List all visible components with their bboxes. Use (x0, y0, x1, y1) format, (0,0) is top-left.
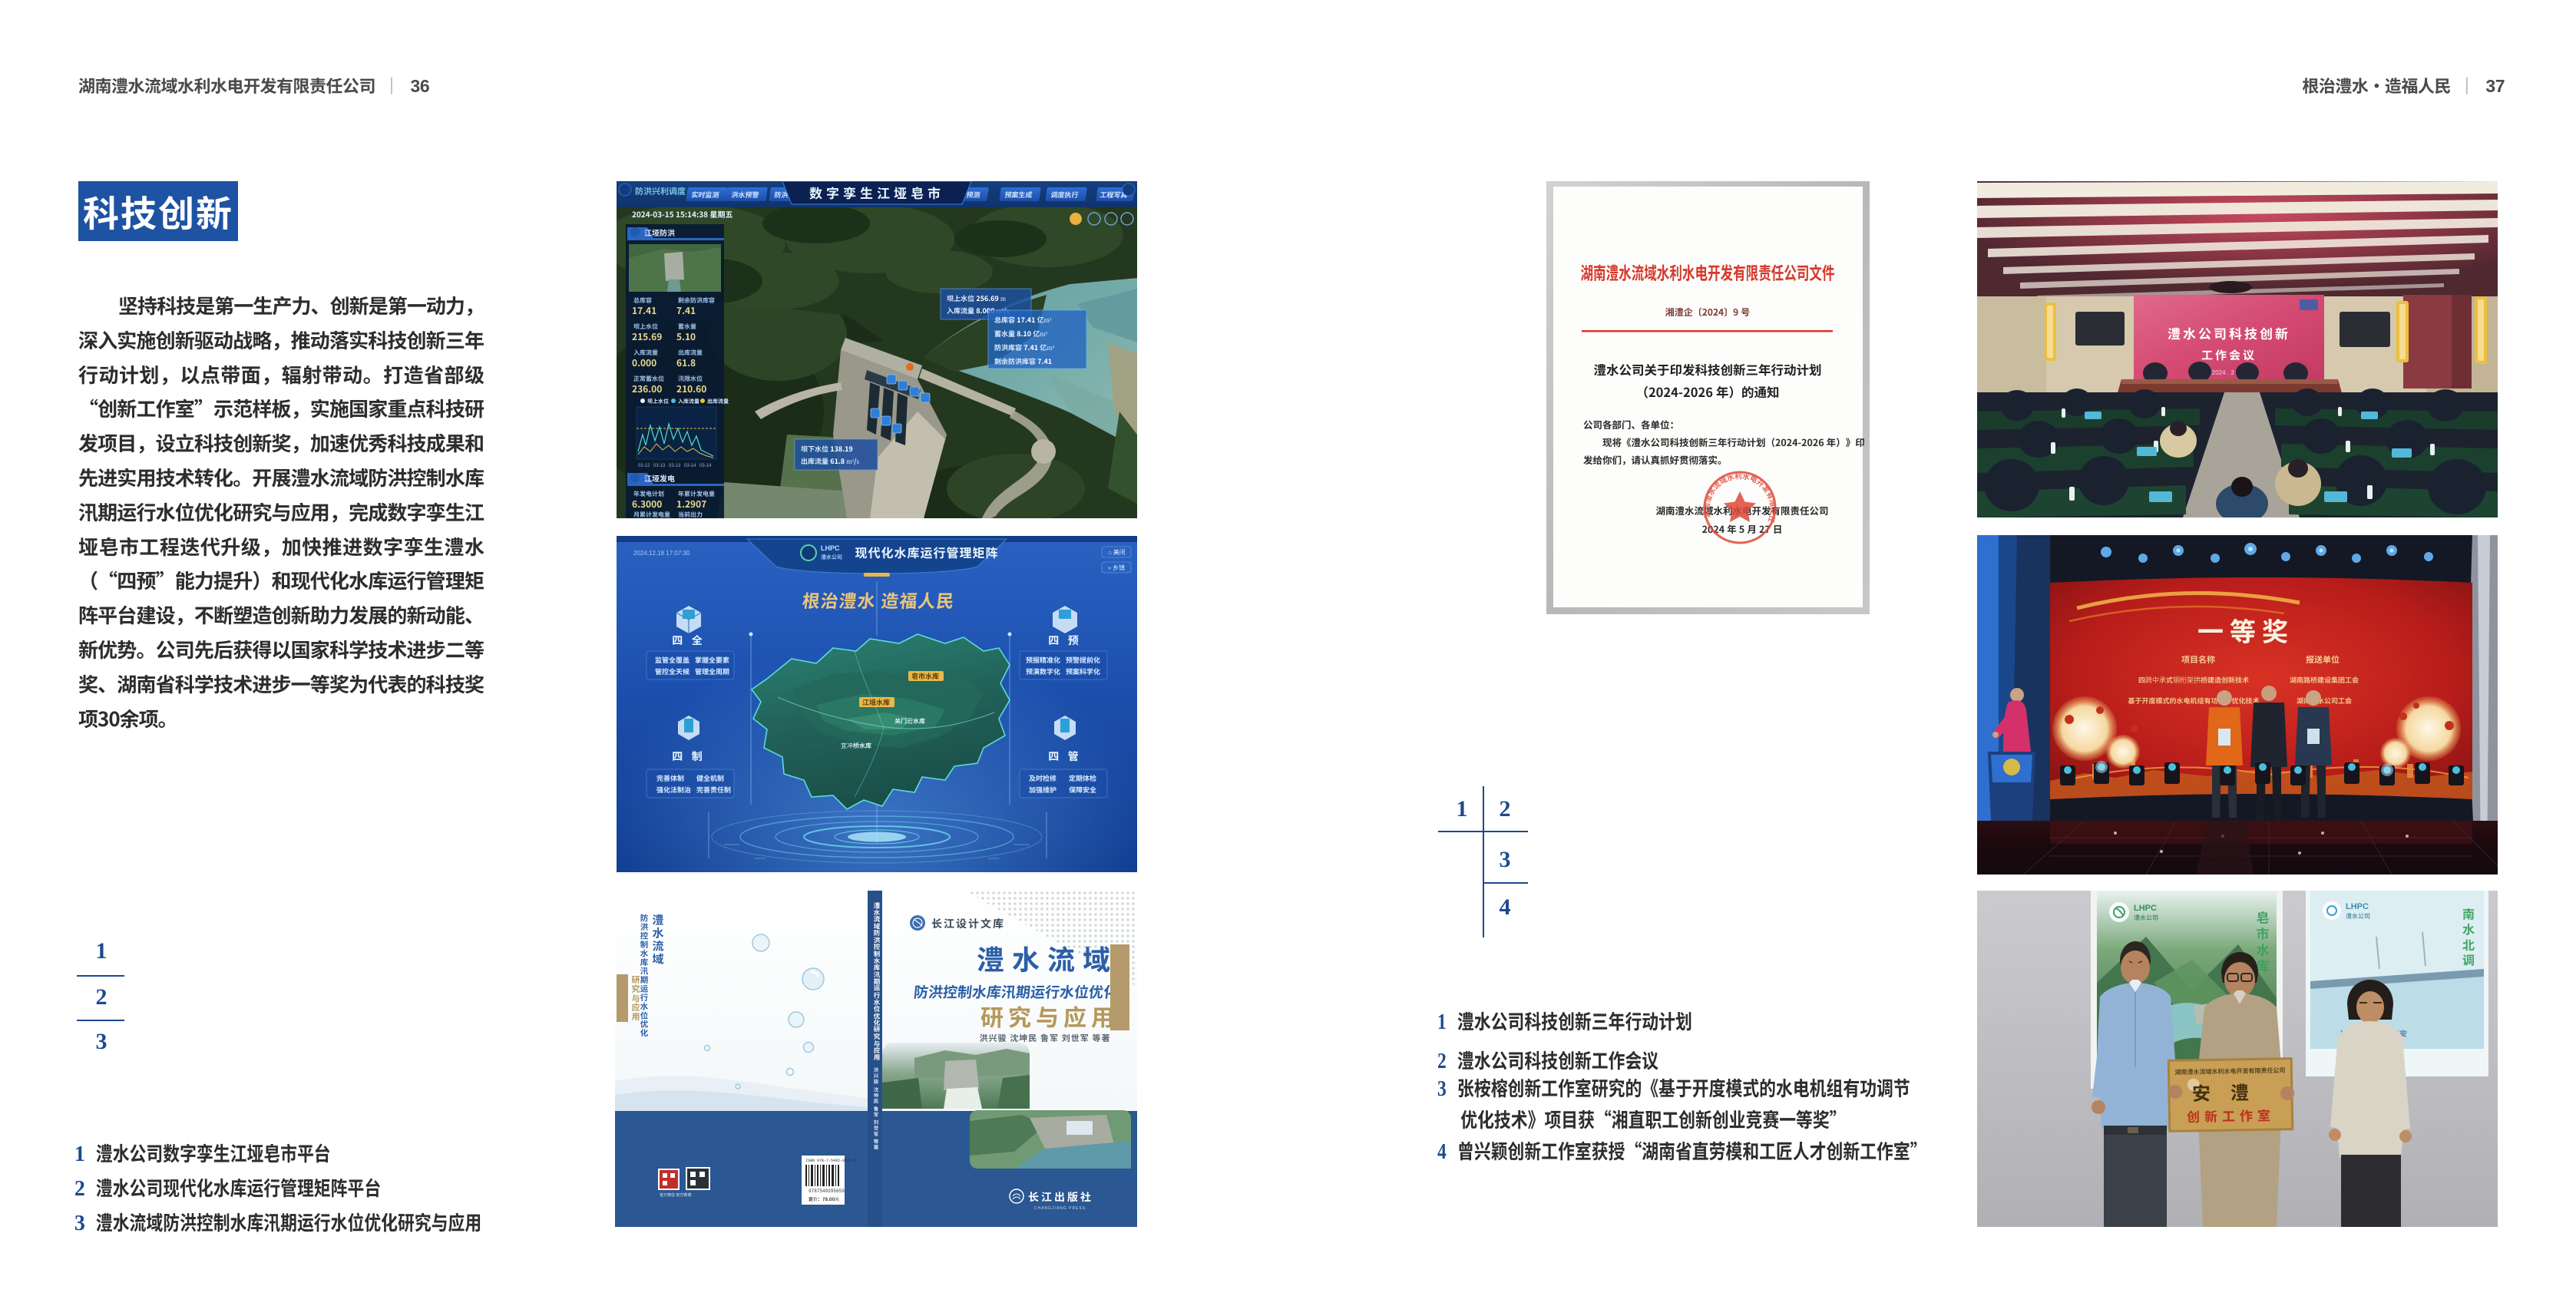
svg-text:基于开度模式的水电机组有功调节优化技术: 基于开度模式的水电机组有功调节优化技术 (2128, 696, 2259, 706)
svg-text:南水北调: 南水北调 (2459, 908, 2478, 969)
svg-text:保障安全: 保障安全 (1069, 785, 1096, 795)
svg-text:月累计发电量: 月累计发电量 (633, 511, 670, 518)
svg-text:防洪兴利调度: 防洪兴利调度 (635, 185, 686, 197)
svg-text:9787549295659: 9787549295659 (809, 1189, 845, 1194)
svg-text:蓄水量 8.10 亿m³: 蓄水量 8.10 亿m³ (994, 329, 1047, 339)
svg-text:澧水流域: 澧水流域 (977, 938, 1118, 978)
svg-text:（2024-2026 年）的通知: （2024-2026 年）的通知 (1635, 382, 1779, 401)
svg-text:5.10: 5.10 (676, 330, 696, 343)
svg-text:03-14: 03-14 (699, 464, 712, 468)
svg-text:公司各部门、各单位：: 公司各部门、各单位： (1583, 417, 1679, 431)
svg-text:实时监测: 实时监测 (691, 190, 720, 200)
svg-text:澧水公司: 澧水公司 (2346, 912, 2370, 921)
svg-text:0.000: 0.000 (632, 356, 656, 369)
svg-text:03-13: 03-13 (653, 464, 666, 468)
svg-text:出库流量: 出库流量 (707, 398, 729, 405)
svg-text:湖南澧水公司工会: 湖南澧水公司工会 (2297, 696, 2352, 706)
svg-text:四 全: 四 全 (672, 633, 706, 648)
svg-text:澧水公司科技创新: 澧水公司科技创新 (2168, 323, 2290, 342)
svg-text:2024-03-15 15:14:38 星期五: 2024-03-15 15:14:38 星期五 (632, 208, 733, 220)
svg-text:坝下水位 138.19: 坝下水位 138.19 (801, 444, 853, 454)
svg-text:江垭水库: 江垭水库 (862, 697, 890, 707)
svg-text:湖南路桥建设集团工会: 湖南路桥建设集团工会 (2290, 675, 2359, 685)
svg-text:管控全天候: 管控全天候 (655, 666, 689, 676)
svg-text:官方微信 官方微博: 官方微信 官方微博 (660, 1192, 691, 1198)
svg-text:洪水预警: 洪水预警 (731, 190, 760, 200)
svg-text:研究与应用: 研究与应用 (630, 975, 642, 1021)
svg-text:及时检修: 及时检修 (1029, 773, 1057, 783)
svg-text:CHANGJIANG PRESS: CHANGJIANG PRESS (1034, 1206, 1086, 1211)
svg-text:LHPC: LHPC (821, 544, 840, 552)
svg-text:定价：78.00元: 定价：78.00元 (809, 1195, 839, 1202)
svg-text:四 管: 四 管 (1048, 749, 1082, 764)
svg-text:安澧: 安澧 (2192, 1077, 2270, 1106)
svg-text:研究与应用: 研究与应用 (980, 999, 1119, 1033)
svg-text:坝上水位 256.69 m: 坝上水位 256.69 m (947, 293, 1006, 303)
svg-text:宜冲桥水库: 宜冲桥水库 (841, 742, 871, 750)
svg-text:项目名称: 项目名称 (2181, 653, 2215, 666)
svg-text:预案生成: 预案生成 (1004, 190, 1033, 200)
svg-text:完善体制: 完善体制 (656, 773, 684, 783)
svg-text:洪兴骏 沈坤民 鲁军 刘世军 等著: 洪兴骏 沈坤民 鲁军 刘世军 等著 (980, 1032, 1111, 1044)
svg-text:长江出版社: 长江出版社 (1028, 1189, 1093, 1205)
svg-text:发给你们，请认真抓好贯彻落实。: 发给你们，请认真抓好贯彻落实。 (1583, 452, 1728, 467)
svg-text:报送单位: 报送单位 (2306, 653, 2340, 666)
svg-text:215.69: 215.69 (632, 330, 662, 343)
svg-text:完善责任制: 完善责任制 (696, 785, 731, 795)
svg-text:工作会议: 工作会议 (2201, 347, 2257, 363)
svg-text:湘澧企〔2024〕9 号: 湘澧企〔2024〕9 号 (1665, 306, 1750, 319)
svg-text:6.3000: 6.3000 (632, 498, 662, 511)
svg-text:监管全覆盖: 监管全覆盖 (655, 655, 689, 665)
svg-text:03-12: 03-12 (638, 464, 650, 468)
svg-text:» 乡镇: » 乡镇 (1108, 564, 1125, 572)
svg-text:7.41: 7.41 (676, 304, 696, 317)
svg-text:健全机制: 健全机制 (696, 773, 724, 783)
svg-text:定期体检: 定期体检 (1069, 773, 1096, 783)
svg-text:皂市水库: 皂市水库 (911, 671, 939, 681)
svg-text:防洪库容 7.41 亿m³: 防洪库容 7.41 亿m³ (994, 342, 1054, 352)
svg-text:澧水公司关于印发科技创新三年行动计划: 澧水公司关于印发科技创新三年行动计划 (1594, 360, 1822, 379)
svg-text:创新工作室: 创新工作室 (2187, 1105, 2275, 1126)
svg-text:ISBN 978-7-5492-9565-9: ISBN 978-7-5492-9565-9 (805, 1159, 856, 1163)
svg-text:江垭发电: 江垭发电 (644, 472, 675, 484)
svg-text:关门岩水库: 关门岩水库 (894, 717, 925, 726)
svg-text:澧水流域: 澧水流域 (650, 914, 666, 966)
svg-text:剩余防洪库容 7.41: 剩余防洪库容 7.41 (994, 356, 1052, 366)
svg-text:2024.12.18 17:07:30: 2024.12.18 17:07:30 (633, 550, 690, 557)
svg-text:03-13: 03-13 (669, 464, 681, 468)
svg-text:管理全周期: 管理全周期 (695, 666, 729, 676)
svg-text:洪兴骏 沈坤民 鲁军 刘世军 等著: 洪兴骏 沈坤民 鲁军 刘世军 等著 (872, 1067, 880, 1150)
svg-text:江垭防洪: 江垭防洪 (644, 226, 675, 238)
svg-text:03-14: 03-14 (684, 464, 696, 468)
svg-text:湖南澧水流域水利水电开发有限责任公司文件: 湖南澧水流域水利水电开发有限责任公司文件 (1580, 260, 1834, 285)
svg-text:LHPC: LHPC (2134, 904, 2157, 913)
svg-text:现代化水库运行管理矩阵: 现代化水库运行管理矩阵 (855, 543, 998, 561)
svg-text:强化法制治: 强化法制治 (656, 785, 691, 795)
svg-text:澧水公司: 澧水公司 (821, 554, 842, 561)
svg-text:预报精准化: 预报精准化 (1026, 655, 1060, 665)
svg-text:调度执行: 调度执行 (1050, 190, 1080, 200)
svg-text:LHPC: LHPC (2346, 902, 2369, 911)
svg-text:210.60: 210.60 (676, 382, 706, 395)
svg-text:根治澧水 造福人民: 根治澧水 造福人民 (801, 587, 956, 613)
svg-text:236.00: 236.00 (632, 382, 662, 395)
svg-text:四 制: 四 制 (672, 749, 706, 764)
svg-text:四跨中承式钢桁架拱桥建造创新技术: 四跨中承式钢桁架拱桥建造创新技术 (2138, 675, 2249, 685)
svg-text:1.2907: 1.2907 (676, 498, 706, 511)
svg-text:长江设计文库: 长江设计文库 (931, 916, 1005, 931)
svg-text:掌握全要素: 掌握全要素 (695, 655, 729, 665)
svg-text:澧水公司: 澧水公司 (2134, 914, 2158, 922)
svg-text:澧水流域防洪控制水库汛期运行水位优化研究与应用: 澧水流域防洪控制水库汛期运行水位优化研究与应用 (872, 901, 881, 1060)
svg-text:总库容 17.41 亿m³: 总库容 17.41 亿m³ (994, 315, 1052, 325)
svg-text:四 预: 四 预 (1048, 633, 1082, 648)
svg-text:现将《澧水公司科技创新三年行动计划（2024-2026 年）: 现将《澧水公司科技创新三年行动计划（2024-2026 年）》印 (1602, 435, 1865, 449)
svg-text:⌂ 关闭: ⌂ 关闭 (1108, 548, 1126, 557)
svg-text:入库流量: 入库流量 (678, 398, 699, 405)
svg-text:当前出力: 当前出力 (678, 511, 703, 518)
svg-text:17.41: 17.41 (632, 304, 656, 317)
svg-text:预警提前化: 预警提前化 (1066, 655, 1100, 665)
svg-text:61.8: 61.8 (676, 356, 696, 369)
svg-text:坝上水位: 坝上水位 (647, 398, 669, 405)
svg-text:预演数字化: 预演数字化 (1026, 666, 1060, 676)
svg-text:加强维护: 加强维护 (1029, 785, 1057, 795)
svg-text:预案科学化: 预案科学化 (1066, 666, 1100, 676)
svg-text:数字孪生江垭皂市: 数字孪生江垭皂市 (809, 183, 944, 202)
svg-text:一等奖: 一等奖 (2197, 611, 2294, 649)
svg-text:出库流量 61.8 m³/s: 出库流量 61.8 m³/s (801, 456, 860, 466)
